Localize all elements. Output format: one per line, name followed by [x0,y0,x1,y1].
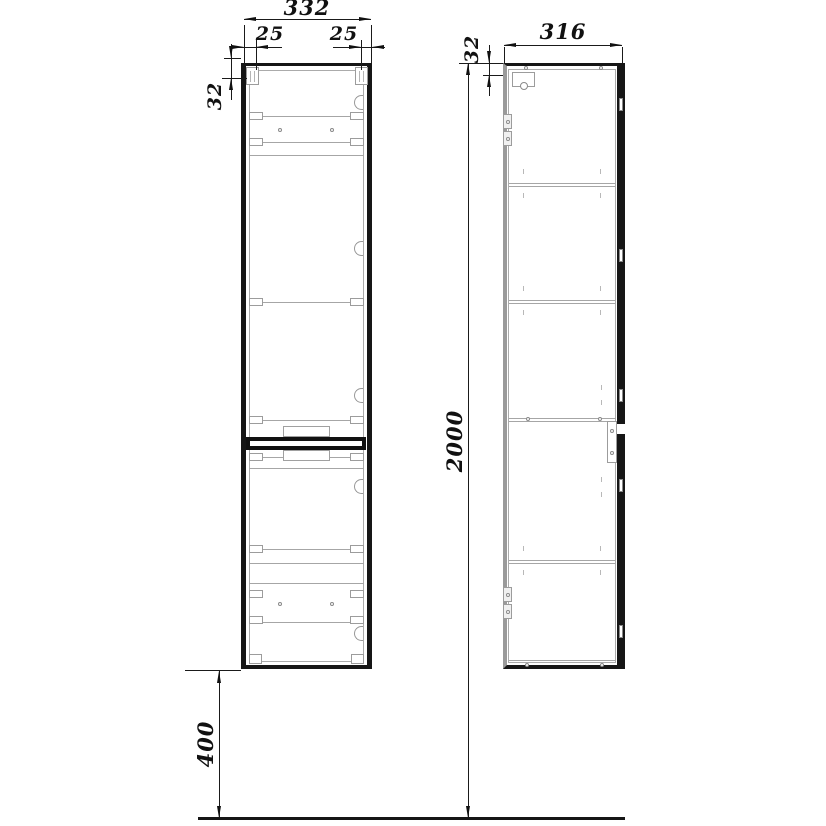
shelf-line [249,142,364,143]
corner-fitting [351,654,364,664]
back-connector [503,114,512,129]
extension-line [483,75,503,76]
shelf-clip [350,453,364,461]
shelf-line [249,549,364,550]
shelf-clip [350,138,364,146]
screw-icon [598,417,602,421]
shelf-line [249,563,364,564]
bracket-slot [254,71,255,82]
dimension-line [504,45,622,46]
connector-hole [506,120,510,124]
hinge-plate-icon [619,389,623,402]
hinge-icon [354,626,363,641]
back-connector [503,131,512,146]
extension-line [224,58,241,59]
pin-hole [523,310,524,315]
pin-hole [600,546,601,551]
pin-hole [601,477,602,482]
pin-hole [601,400,602,405]
handle-groove-upper [283,426,330,437]
handle-bracket-hole [610,451,614,455]
shelf-clip [350,590,364,598]
shelf-line [249,420,364,421]
shelf-clip [350,616,364,624]
shelf-clip [350,416,364,424]
wall-bracket-side-icon [512,72,535,87]
hinge-icon [354,95,363,110]
extension-line [504,47,505,63]
arrowhead [487,75,491,87]
back-connector [503,604,512,619]
arrowhead [229,46,233,58]
floor-line [198,817,625,820]
cam-fitting-icon [278,602,282,606]
arrowhead [372,45,384,49]
shelf-clip [249,590,263,598]
dimension-label: 25 [328,23,360,45]
pin-hole [523,193,524,198]
handle-bracket-side [607,421,617,463]
arrowhead [487,51,491,63]
shelf-clip [249,298,263,306]
bracket-slot [363,71,364,82]
shelf-line [249,302,364,303]
dimension-label: 400 [195,714,217,774]
arrowhead [466,63,470,75]
pin-hole [600,570,601,575]
arrowhead [504,43,516,47]
hinge-plate-icon [619,479,623,492]
shelf-clip [249,416,263,424]
shelf-clip [249,138,263,146]
side-shelf-line [509,183,616,187]
screw-icon [526,417,530,421]
wall-bracket-left-icon [246,67,259,85]
shelf-line [249,155,364,156]
door-edge-upper [617,63,625,424]
arrowhead [610,43,622,47]
hinge-icon [354,241,363,256]
shelf-clip [350,298,364,306]
screw-icon [600,663,604,667]
shelf-clip [350,112,364,120]
arrowhead [349,45,361,49]
hinge-icon [354,479,363,494]
hinge-plate-icon [619,98,623,111]
handle-groove-lower [283,450,330,461]
hinge-plate-icon [619,625,623,638]
dimension-label: 332 [277,0,337,19]
shelf-clip [249,453,263,461]
dimension-label: 25 [254,23,286,45]
back-connector [503,587,512,602]
pin-hole [600,286,601,291]
extension-line [361,40,362,70]
pin-hole [523,546,524,551]
hinge-plate-icon [619,249,623,262]
arrowhead [244,17,256,21]
side-shelf-line [509,300,616,304]
hinge-icon [354,388,363,403]
arrowhead [217,671,221,683]
shelf-clip [350,545,364,553]
cam-fitting-icon [278,128,282,132]
dimension-line [219,671,220,818]
shelf-clip [249,112,263,120]
connector-hole [506,610,510,614]
shelf-line [249,116,364,117]
pin-hole [601,492,602,497]
dimension-label: 32 [204,76,226,116]
corner-fitting [249,654,262,664]
shelf-clip [249,616,263,624]
side-shelf-line [509,560,616,564]
arrowhead [229,78,233,90]
pin-hole [600,169,601,174]
screw-icon [525,663,529,667]
pin-hole [523,286,524,291]
arrowhead [359,17,371,21]
front-inner-frame [249,70,364,662]
screw-icon [599,66,603,70]
arrowhead [256,45,268,49]
dimension-line [468,63,469,818]
shelf-line [249,468,364,469]
shelf-line [249,583,364,584]
side-bottom-line [509,660,616,661]
bracket-slot [359,71,360,82]
extension-line [185,670,241,671]
pin-hole [523,169,524,174]
dimension-label: 316 [533,21,593,43]
handle-bracket-hole [610,429,614,433]
pin-hole [600,193,601,198]
pin-hole [600,310,601,315]
bracket-slot [250,71,251,82]
technical-drawing: 332 25 25 32 316 32 [0,0,826,826]
door-gap-bar [246,437,366,450]
connector-hole [506,593,510,597]
shelf-line [249,622,364,623]
extension-line [371,25,372,63]
extension-line [622,47,623,63]
arrowhead [232,45,244,49]
pin-hole [601,385,602,390]
extension-line [244,25,245,63]
dimension-label: 2000 [444,406,466,476]
bracket-notch [520,82,528,90]
connector-hole [506,137,510,141]
pin-hole [523,570,524,575]
screw-icon [524,66,528,70]
cam-fitting-icon [330,128,334,132]
shelf-clip [249,545,263,553]
cam-fitting-icon [330,602,334,606]
